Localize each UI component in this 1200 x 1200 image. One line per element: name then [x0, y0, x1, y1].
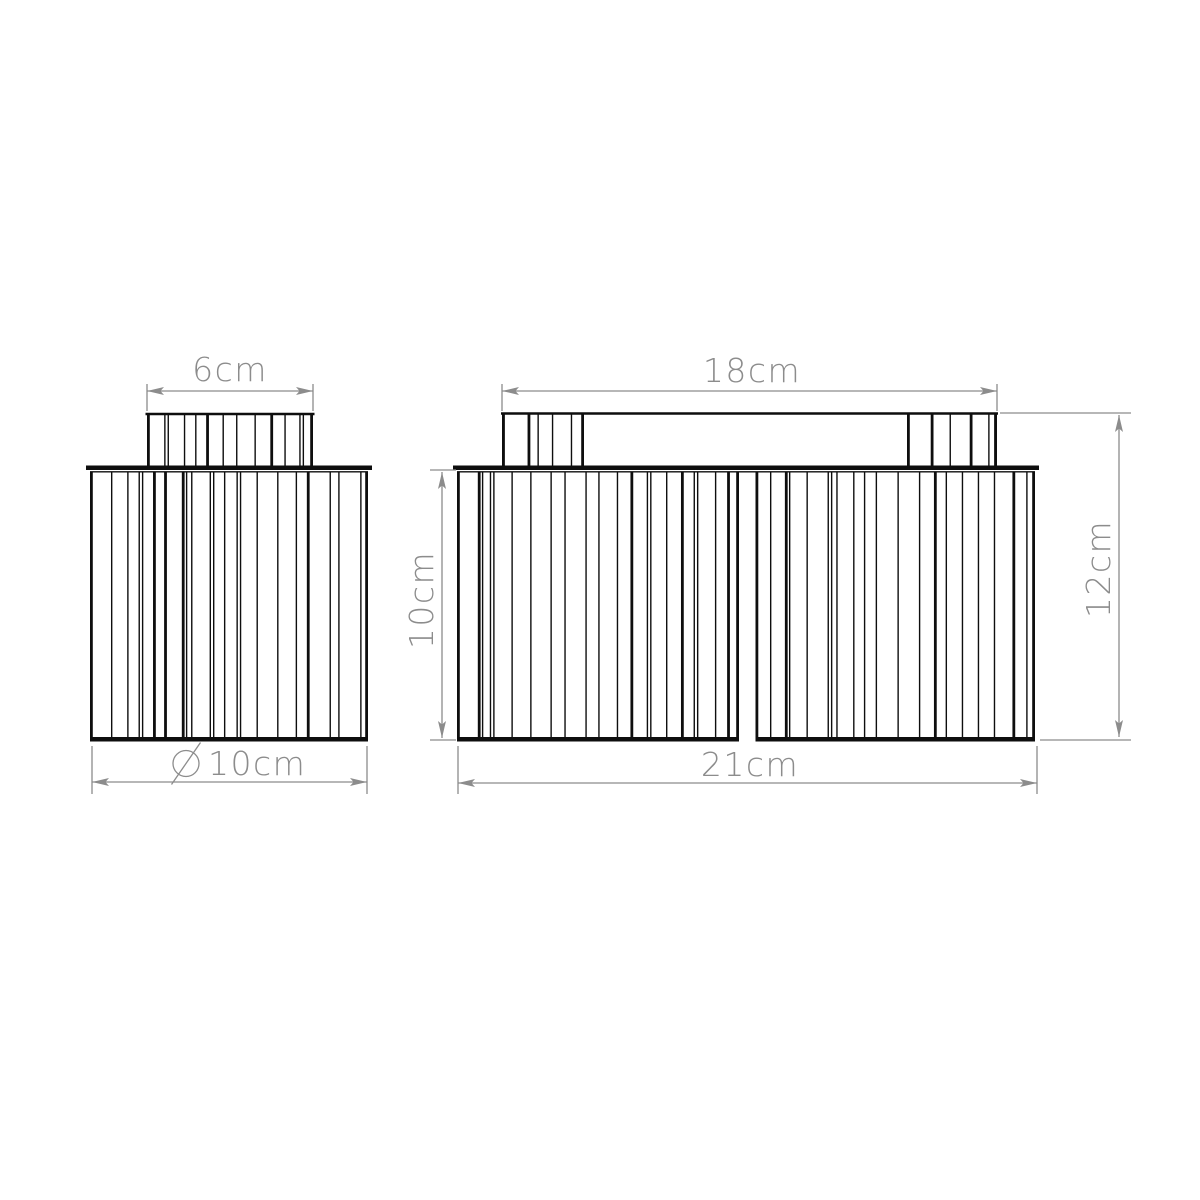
- shade-bottom-line: [90, 737, 368, 742]
- mount-plate: [86, 466, 372, 471]
- cap-width-label: 6cm: [192, 350, 268, 389]
- overall-width-label: 21cm: [701, 745, 799, 784]
- drawing-canvas: 6cm 10cm 18cm: [0, 0, 1200, 1200]
- right-shade-bottom-line: [756, 737, 1036, 742]
- background: [0, 0, 1200, 1200]
- shade-diameter-label: 10cm: [208, 744, 306, 783]
- shade-height-label: 10cm: [402, 551, 441, 649]
- dimension-drawing: 6cm 10cm 18cm: [0, 0, 1200, 1200]
- canopy-width-label: 18cm: [703, 351, 801, 390]
- left-shade-bottom-line: [457, 737, 739, 742]
- overall-height-label: 12cm: [1079, 520, 1118, 618]
- mount-plate: [453, 466, 1039, 471]
